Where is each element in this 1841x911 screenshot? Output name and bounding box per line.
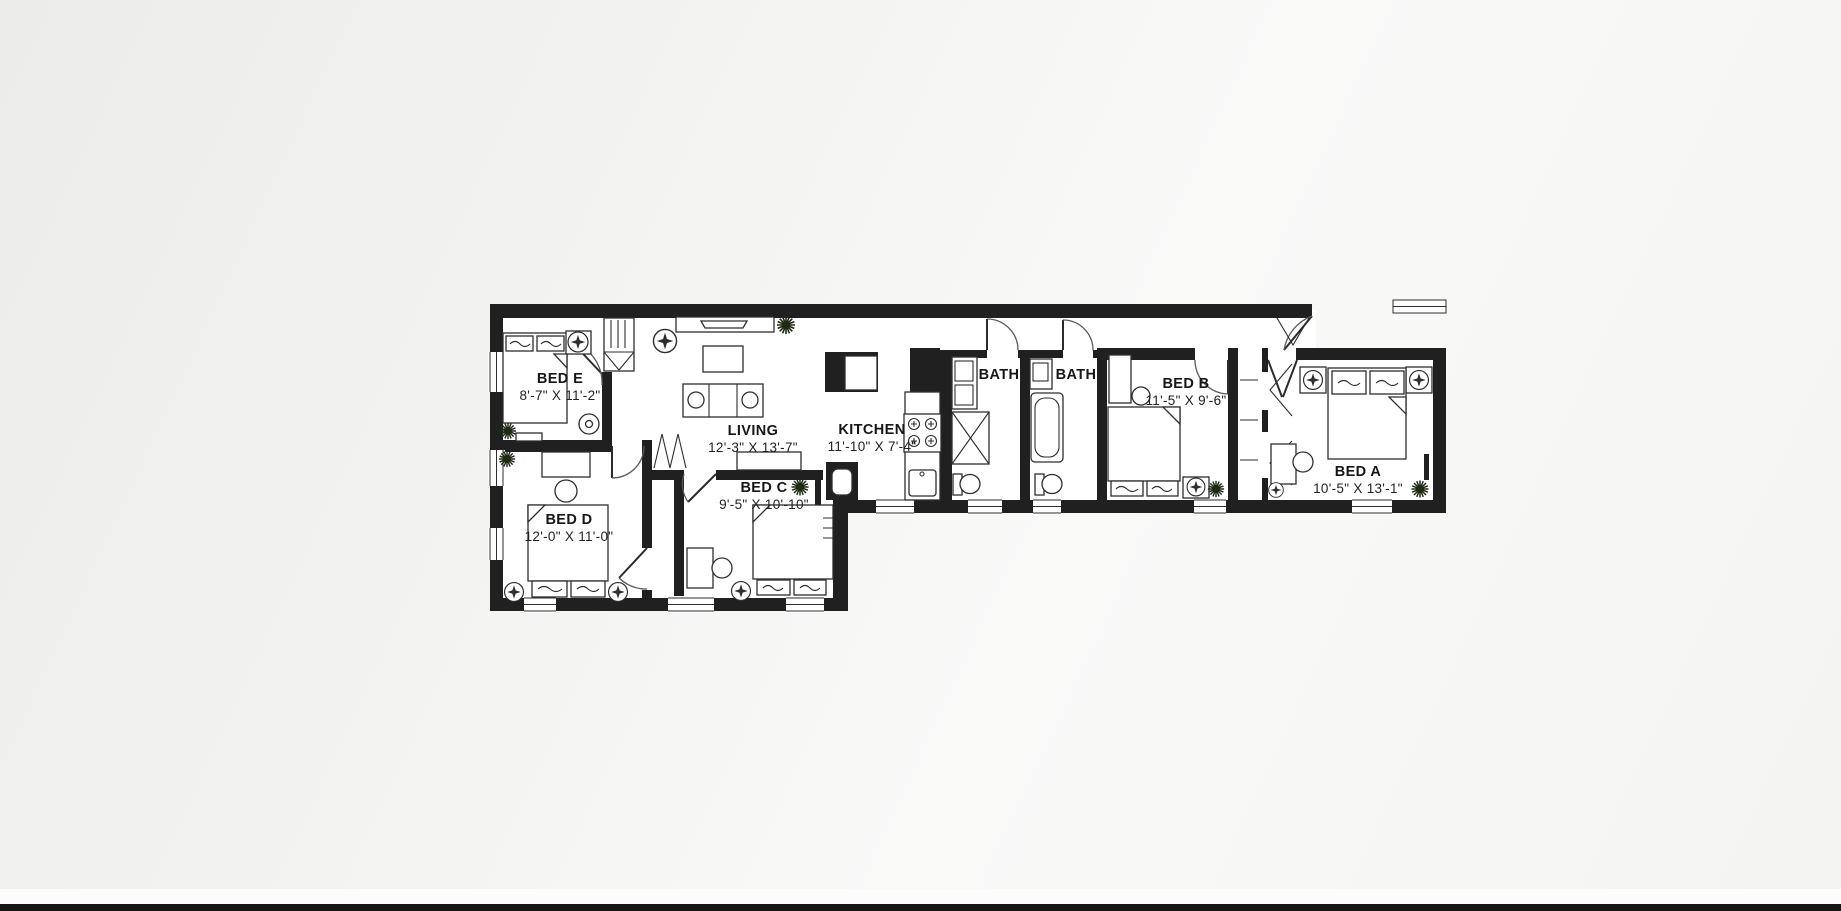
plant-icon (1208, 481, 1224, 497)
kitchen-sink (909, 470, 936, 496)
ceiling-fan-icon (1410, 371, 1429, 390)
wardrobe (604, 318, 634, 371)
room-dims-living: 12'-3" X 13'-7" (708, 440, 798, 455)
ceiling-fan-icon (609, 583, 628, 602)
desk (1271, 444, 1296, 484)
plant-icon (1411, 480, 1428, 497)
desk (1109, 355, 1131, 403)
room-label-bed-e: BED E (537, 371, 583, 387)
footer-bar (0, 904, 1841, 911)
room-dims-bed-b: 11'-5" X 9'-6" (1146, 393, 1227, 408)
plant-icon (777, 316, 795, 334)
ceiling-fan-icon (1304, 371, 1323, 390)
radiator (516, 433, 542, 441)
room-label-bed-b: BED B (1162, 376, 1209, 392)
room-dims-kitchen: 11'-10" X 7'-4" (828, 439, 917, 454)
room-label-living: LIVING (728, 423, 779, 439)
room-label-bed-a: BED A (1335, 464, 1382, 480)
floor-plan: BED E 8'-7" X 11'-2" LIVING 12'-3" X 13'… (0, 0, 1841, 911)
ceiling-fan-icon (732, 582, 751, 601)
room-label-bed-c: BED C (740, 480, 787, 496)
ceiling-fan-icon (653, 329, 676, 352)
upper-cabinet (845, 356, 877, 390)
room-label-kitchen: KITCHEN (838, 422, 905, 438)
desk (687, 548, 713, 588)
bed (1108, 407, 1180, 481)
room-label-bed-d: BED D (545, 512, 592, 528)
ceiling-fan-icon (568, 332, 588, 352)
ceiling-fan-icon (505, 583, 524, 602)
tv-icon (701, 321, 747, 328)
chair (712, 558, 732, 578)
chair (555, 480, 577, 502)
desk (542, 452, 590, 477)
footer-strip (0, 889, 1841, 904)
room-label-bath-1: BATH (979, 367, 1020, 383)
ceiling-fan-icon (1269, 483, 1284, 498)
chair (1293, 452, 1313, 472)
bed (753, 505, 833, 579)
ottoman (703, 346, 743, 372)
room-label-bath-2: BATH (1056, 367, 1097, 383)
room-dims-bed-e: 8'-7" X 11'-2" (520, 388, 601, 403)
ceiling-fan-icon (1187, 478, 1205, 496)
plant-icon (791, 478, 808, 495)
room-dims-bed-c: 9'-5" X 10'-10" (719, 497, 809, 512)
page: BED E 8'-7" X 11'-2" LIVING 12'-3" X 13'… (0, 0, 1841, 911)
sink (832, 469, 852, 495)
room-dims-bed-d: 12'-0" X 11'-0" (525, 529, 614, 544)
room-dims-bed-a: 10'-5" X 13'-1" (1313, 481, 1403, 496)
